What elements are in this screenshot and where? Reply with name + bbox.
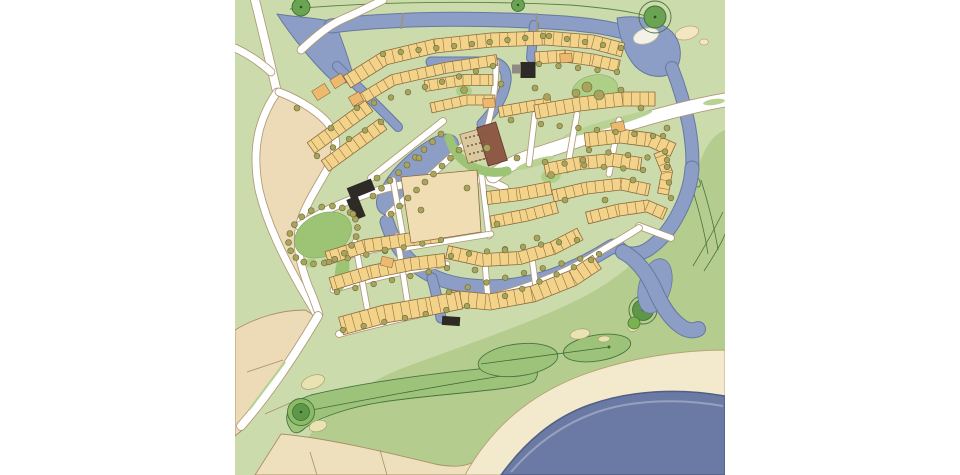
trees-northwest-rows-tree: [330, 145, 336, 151]
trees-second-row-tree: [473, 68, 479, 74]
tree-ring-oval-park-tree: [286, 240, 292, 246]
trees-northwest-rows-tree: [314, 153, 320, 159]
trees-basin-northwest-bank-tree: [396, 170, 402, 176]
orchard-dots-2-tree: [479, 142, 481, 144]
tree-ring-oval-park-tree: [293, 255, 299, 261]
trees-avenue-north-tree: [576, 125, 582, 131]
fairway-south-pin: [608, 346, 611, 349]
tree-ring-oval-park-tree: [353, 233, 359, 239]
right-margin: [725, 0, 960, 475]
trees-east-edge-tree: [666, 180, 672, 186]
tree-ring-oval-park-tree: [354, 224, 360, 230]
orchard-dots-3-tree: [481, 150, 483, 152]
orchard-dots-1-tree: [465, 137, 467, 139]
trees-south-edge-east-tree: [554, 272, 560, 278]
specimen-tree-northeast-dot: [654, 16, 657, 19]
trees-north-row-west-tree: [540, 33, 546, 39]
trees-avenue-north-tree: [632, 131, 638, 137]
landmark-building-north: [521, 62, 536, 78]
trees-southwest-street-b-tree: [371, 281, 377, 287]
orchard-dots-1-tree: [477, 134, 479, 136]
scattered-garden-trees-tree: [498, 81, 504, 87]
trees-second-row-tree: [422, 84, 428, 90]
trees-canal-north-bank-tree: [520, 244, 526, 250]
scattered-garden-trees-tree: [602, 197, 608, 203]
trees-basin-southeast-bank-tree: [439, 163, 445, 169]
trees-avenue-north-tree: [538, 121, 544, 127]
trees-east-edge-tree: [664, 164, 670, 170]
trees-basin-southeast-bank-tree: [422, 179, 428, 185]
scattered-garden-trees-tree: [350, 211, 356, 217]
trees-north-row-west-tree: [469, 41, 475, 47]
trees-north-row-west-tree: [398, 49, 404, 55]
trees-north-row-west-tree: [487, 39, 493, 45]
orchard-dots-4-tree: [479, 159, 481, 161]
trees-north-row-west-tree: [380, 51, 386, 57]
trees-fan-row-tree: [625, 152, 631, 158]
scattered-garden-trees-tree: [374, 175, 380, 181]
orchard-dots-2-tree: [475, 143, 477, 145]
tree-ring-oval-park-tree: [301, 259, 307, 265]
trees-basin-northwest-bank-tree: [379, 185, 385, 191]
trees-canal-south-bank-tree: [577, 256, 583, 262]
orchard-dots-2-tree: [471, 144, 473, 146]
trees-avenue-south-tree: [640, 167, 646, 173]
trees-southwest-street-b-tree: [426, 269, 432, 275]
trees-north-row-east-tree: [582, 39, 588, 45]
trees-canal-south-bank-tree: [596, 251, 602, 257]
trees-canal-south-bank-tree: [446, 289, 452, 295]
trees-south-edge-tree: [340, 327, 346, 333]
trees-fan-row-tree: [664, 157, 670, 163]
trees-second-row-tree: [371, 100, 377, 106]
scattered-garden-trees-tree: [572, 89, 580, 97]
trees-basin-southeast-bank-tree: [405, 195, 411, 201]
scattered-garden-trees-tree: [664, 125, 670, 131]
tree-ring-oval-park-tree: [308, 208, 314, 214]
tree-ring-oval-park-tree: [311, 261, 317, 267]
trees-south-edge-tree: [444, 307, 450, 313]
trees-north-row-west-tree: [451, 43, 457, 49]
tree-ring-oval-park-tree: [349, 242, 355, 248]
trees-canal-south-bank-tree: [540, 265, 546, 271]
scattered-garden-trees-tree: [294, 105, 300, 111]
trees-canal-north-bank-tree: [484, 249, 490, 255]
tree-ring-oval-park-tree: [339, 205, 345, 211]
trees-northwest-rows-tree: [346, 136, 352, 142]
orchard-dots-4-tree: [475, 160, 477, 162]
scattered-garden-trees-tree: [514, 155, 520, 161]
trees-fan-row-tree: [586, 147, 592, 153]
trees-south-edge-east-tree: [537, 279, 543, 285]
trees-southwest-street-a-tree: [420, 241, 426, 247]
orchard-dots-1-tree: [473, 135, 475, 137]
trees-basin-northwest-bank-tree: [404, 162, 410, 168]
trees-second-row-tree: [439, 79, 445, 85]
trees-north-row-west-tree: [434, 45, 440, 51]
scattered-garden-trees-tree: [630, 177, 636, 183]
trees-avenue-south-tree: [542, 159, 548, 165]
orange-block-g: [560, 53, 573, 63]
trees-second-row-east-tree: [575, 65, 581, 71]
trees-south-edge-tree: [361, 323, 367, 329]
trees-second-row-east-tree: [536, 61, 542, 67]
trees-basin-northwest-bank-tree: [438, 131, 444, 137]
trees-south-edge-east-tree: [502, 293, 508, 299]
tree-ring-oval-park-tree: [299, 214, 305, 220]
trees-southwest-street-a-tree: [345, 256, 351, 262]
trees-southwest-street-a-tree: [326, 259, 332, 265]
orchard-dots-3-tree: [473, 152, 475, 154]
trees-fan-row-tree: [606, 150, 612, 156]
trees-northwest-rows-tree: [378, 119, 384, 125]
trees-second-row-east-tree: [595, 67, 601, 73]
orchard-dots-4-tree: [487, 157, 489, 159]
trees-east-edge-tree: [668, 195, 674, 201]
trees-basin-southeast-bank-tree: [456, 147, 462, 153]
trees-east-edge-tree: [660, 133, 666, 139]
golf-green-small: [628, 317, 640, 329]
golf-tee-west-dot: [300, 411, 303, 414]
scattered-garden-trees-tree: [484, 145, 491, 152]
trees-north-row-west-tree: [416, 47, 422, 53]
trees-north-row-west-tree: [522, 35, 528, 41]
trees-southwest-street-b-tree: [408, 273, 414, 279]
trees-north-row-east-tree: [546, 33, 552, 39]
trees-south-edge-east-tree: [571, 264, 577, 270]
tree-ring-oval-park-tree: [287, 231, 293, 237]
map-canvas: [235, 0, 725, 475]
trees-southwest-street-b-tree: [353, 285, 359, 291]
orchard-dots-2-tree: [483, 141, 485, 143]
masterplan-svg: [235, 0, 725, 475]
trees-avenue-north-tree: [557, 123, 563, 129]
left-margin: [0, 0, 235, 475]
trees-avenue-south-tree: [562, 161, 568, 167]
specimen-tree-northwest-dot: [300, 6, 303, 9]
trees-northwest-rows-tree: [362, 128, 368, 134]
scattered-garden-trees-tree: [502, 247, 508, 253]
trees-basin-southeast-bank-tree: [397, 203, 403, 209]
tree-ring-oval-park-tree: [319, 204, 325, 210]
scattered-garden-trees-tree: [618, 87, 624, 93]
trees-east-edge-tree: [662, 149, 668, 155]
scattered-garden-trees-tree: [461, 87, 468, 94]
trees-north-row-west-tree: [505, 37, 511, 43]
scattered-garden-trees-tree: [544, 94, 551, 101]
scattered-garden-trees-tree: [562, 197, 568, 203]
cream-knoll-ne-small: [700, 39, 709, 45]
page: [0, 0, 960, 475]
tree-ring-oval-park-tree: [341, 250, 347, 256]
trees-avenue-north-tree: [650, 133, 656, 139]
scattered-garden-trees-tree: [418, 207, 424, 213]
trees-canal-south-bank-tree: [502, 275, 508, 281]
tree-ring-oval-park-tree: [288, 248, 294, 254]
orchard-dots-3-tree: [469, 153, 471, 155]
landmark-building-south: [442, 316, 461, 326]
trees-basin-northwest-bank-tree: [421, 147, 427, 153]
trees-canal-north-bank-tree: [538, 242, 544, 248]
trees-basin-southeast-bank-tree: [388, 211, 394, 217]
trees-south-edge-east-tree: [519, 286, 525, 292]
orchard-dots-3-tree: [477, 151, 479, 153]
tree-ring-oval-park-tree: [291, 222, 297, 228]
trees-avenue-south-tree: [621, 166, 627, 172]
trees-canal-north-bank-tree: [574, 237, 580, 243]
scattered-garden-trees-tree: [532, 85, 538, 91]
trees-north-row-east-tree: [618, 45, 624, 51]
trees-avenue-north-tree: [594, 127, 600, 133]
scattered-garden-trees-tree: [548, 172, 555, 179]
scattered-garden-trees-tree: [416, 155, 422, 161]
trees-canal-south-bank-tree: [559, 261, 565, 267]
trees-south-edge-east-tree: [588, 257, 594, 263]
trees-basin-southeast-bank-tree: [448, 155, 454, 161]
trees-second-row-tree: [405, 89, 411, 95]
trees-southwest-street-b-tree: [389, 277, 395, 283]
trees-basin-northwest-bank-tree: [430, 139, 436, 145]
scattered-garden-trees-tree: [328, 125, 334, 131]
orchard-dots-1-tree: [469, 136, 471, 138]
trees-second-row-tree: [388, 95, 394, 101]
trees-basin-northwest-bank-tree: [387, 178, 393, 184]
trees-canal-south-bank-tree: [484, 280, 490, 286]
tree-ring-oval-park-tree: [329, 203, 335, 209]
trees-north-row-east-tree: [564, 36, 570, 42]
trees-second-row-east-tree: [556, 63, 562, 69]
trees-southwest-street-b-tree: [334, 289, 340, 295]
scattered-garden-trees-tree: [534, 235, 540, 241]
trees-south-edge-tree: [382, 319, 388, 325]
orange-block-d: [483, 98, 496, 108]
trees-canal-north-bank-tree: [466, 251, 472, 257]
scattered-garden-trees-tree: [382, 247, 388, 253]
scattered-garden-trees-tree: [472, 267, 478, 273]
orchard-dots-4-tree: [483, 158, 485, 160]
trees-canal-north-bank-tree: [448, 253, 454, 259]
trees-avenue-south-tree: [601, 164, 607, 170]
scattered-garden-trees-tree: [582, 82, 592, 92]
trees-southwest-street-a-tree: [438, 237, 444, 243]
trees-basin-southeast-bank-tree: [431, 171, 437, 177]
trees-southwest-street-b-tree: [444, 265, 450, 271]
trees-north-row-east-tree: [600, 42, 606, 48]
scattered-garden-trees-tree: [638, 105, 644, 111]
scattered-garden-trees-tree: [464, 185, 470, 191]
trees-second-row-tree: [354, 105, 360, 111]
trees-second-row-east-tree: [614, 69, 620, 75]
trees-avenue-north-tree: [613, 129, 619, 135]
trees-basin-southeast-bank-tree: [414, 187, 420, 193]
trees-southwest-street-a-tree: [401, 245, 407, 251]
tree-ring-oval-park-tree: [332, 256, 338, 262]
trees-south-edge-tree: [464, 303, 470, 309]
annex-building-north: [512, 65, 520, 74]
trees-southwest-street-a-tree: [364, 252, 370, 258]
trees-canal-south-bank-tree: [521, 270, 527, 276]
trees-south-edge-tree: [402, 315, 408, 321]
scattered-garden-trees-tree: [508, 117, 514, 123]
trees-canal-north-bank-tree: [556, 239, 562, 245]
trees-basin-northwest-bank-tree: [370, 193, 376, 199]
scattered-garden-trees-tree: [494, 221, 500, 227]
trees-south-edge-tree: [423, 311, 429, 317]
orchard-dots-2-tree: [467, 145, 469, 147]
golf-tee-top-dot: [517, 4, 519, 6]
trees-fan-row-tree: [645, 155, 651, 161]
scattered-garden-trees-tree: [594, 90, 604, 100]
trees-canal-south-bank-tree: [465, 284, 471, 290]
scattered-garden-trees-tree: [580, 157, 586, 163]
paddock-block: [401, 170, 481, 243]
orchard-dots-1-tree: [481, 133, 483, 135]
orchard-dots-4-tree: [471, 161, 473, 163]
trees-second-row-tree: [490, 63, 496, 69]
trees-avenue-south-tree: [581, 162, 587, 168]
trees-second-row-tree: [456, 74, 462, 80]
